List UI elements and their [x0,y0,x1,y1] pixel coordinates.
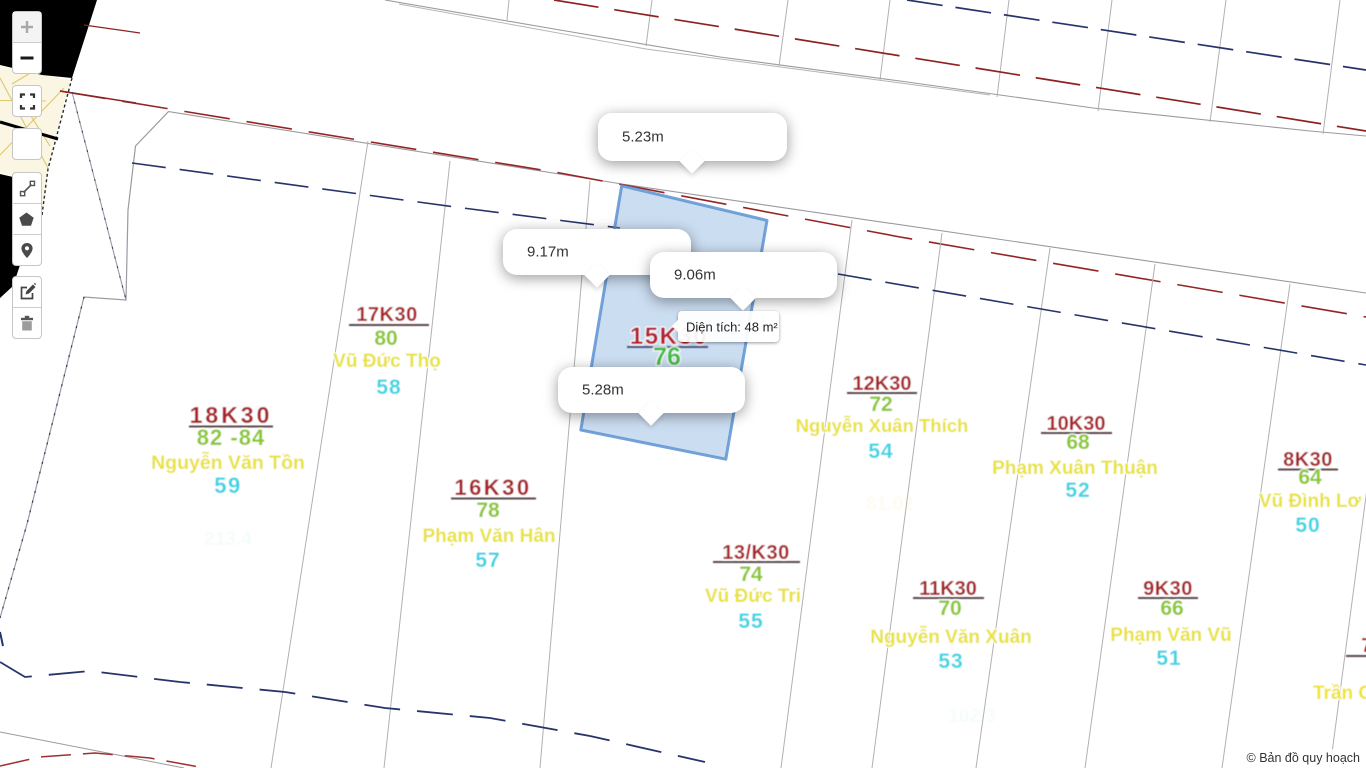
svg-text:Phạm Xuân Thuận: Phạm Xuân Thuận [992,458,1158,479]
svg-text:16K30: 16K30 [454,475,531,500]
svg-text:82 -84: 82 -84 [197,425,265,450]
svg-text:Trần Cư: Trần Cư [1313,683,1366,704]
svg-text:50: 50 [1295,514,1320,537]
svg-text:13/K30: 13/K30 [722,542,790,564]
svg-text:53: 53 [938,650,963,673]
svg-text:Vũ Đức Thọ: Vũ Đức Thọ [333,351,441,372]
svg-text:81.02: 81.02 [866,494,914,515]
svg-text:70: 70 [938,597,961,620]
svg-text:17K30: 17K30 [356,304,417,326]
svg-text:80: 80 [374,327,397,350]
svg-text:64: 64 [1298,466,1322,489]
svg-text:Vũ Đình Lơ: Vũ Đình Lơ [1259,491,1362,512]
svg-text:213.4: 213.4 [204,529,252,550]
svg-text:Nguyễn Văn Xuân: Nguyễn Văn Xuân [870,626,1032,648]
svg-text:74: 74 [739,563,763,586]
svg-text:68: 68 [1066,431,1090,454]
svg-text:58: 58 [376,376,401,399]
svg-text:54: 54 [868,440,893,463]
svg-text:72: 72 [869,393,892,416]
svg-text:Nguyễn Văn Tồn: Nguyễn Văn Tồn [151,450,305,474]
svg-text:59: 59 [214,473,241,498]
svg-text:12K30: 12K30 [853,373,912,395]
svg-text:Phạm Văn Hân: Phạm Văn Hân [422,526,555,547]
svg-text:102.3: 102.3 [948,706,996,727]
svg-text:Nguyễn Xuân Thích: Nguyễn Xuân Thích [796,415,969,436]
svg-text:7K: 7K [1361,635,1366,657]
svg-text:Vũ Đức Tri: Vũ Đức Tri [705,586,801,607]
svg-text:57: 57 [475,549,500,572]
svg-text:55: 55 [738,610,763,633]
svg-text:78: 78 [476,499,500,522]
svg-text:52: 52 [1065,479,1090,502]
svg-text:Phạm Văn Vũ: Phạm Văn Vũ [1110,625,1231,646]
svg-text:66: 66 [1160,597,1183,620]
svg-text:51: 51 [1156,647,1181,670]
